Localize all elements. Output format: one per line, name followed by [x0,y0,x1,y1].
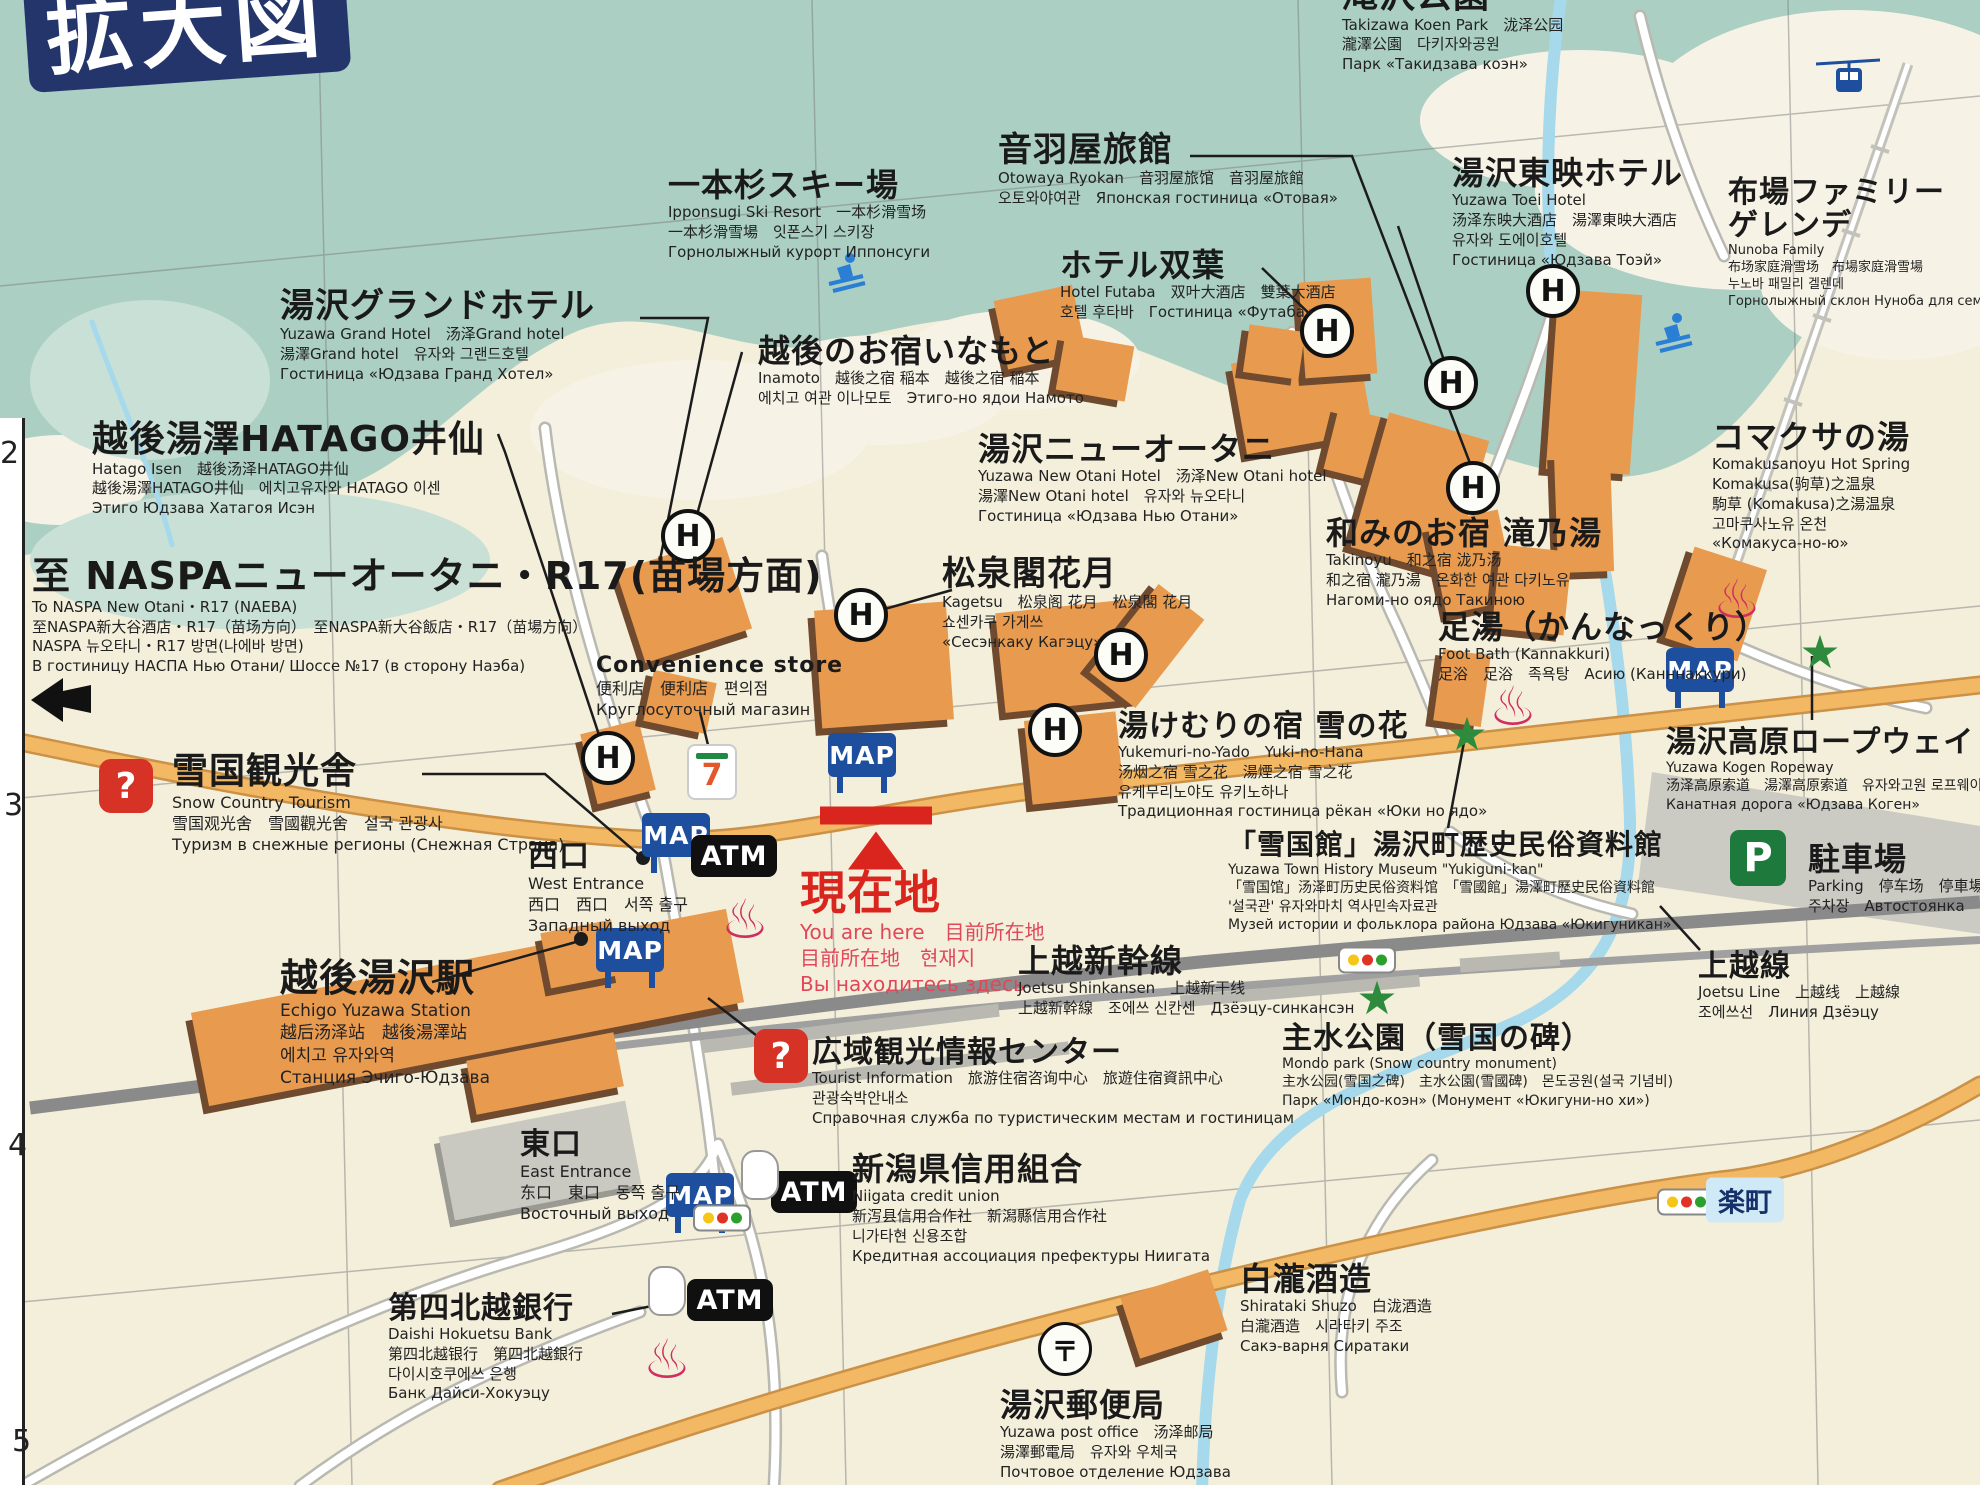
label-heading: 白瀧酒造 [1240,1262,1432,1297]
label-subline: «Сесэнкаку Кагэцу» [942,633,1192,653]
label-subline: 湯澤郵電局 유자와 우체국 [1000,1443,1231,1463]
label-subline: 汤泽东映大酒店 湯澤東映大酒店 [1452,211,1683,231]
label-subline: Yuzawa Kogen Ropeway [1666,759,1980,777]
enlarged-map-badge: 拡大図 [23,0,352,93]
label-subline: Yuzawa Grand Hotel 汤泽Grand hotel [280,325,595,345]
label-subline: Гостиница «Юдзава Гранд Хотел» [280,365,595,385]
label-subline: Takinoyu 和之宿 泷乃汤 [1326,551,1602,571]
label-subline: Yuzawa Town History Museum "Yukiguni-kan… [1228,861,1671,879]
label-subline: 主水公园(雪国之碑) 主水公園(雪國碑) 몬도공원(설국 기념비) [1282,1073,1673,1091]
grid-number: 3 [4,788,23,823]
atm-icon: ATM [687,1279,773,1321]
hotel-icon: H [1424,356,1478,410]
map-margin [0,418,25,1485]
label-subline: West Entrance [528,873,688,894]
label-subline: Hotel Futaba 双叶大酒店 雙葉大酒店 [1060,283,1336,303]
label-heading: 上越線 [1698,950,1900,983]
label-subline: Mondo park (Snow country monument) [1282,1055,1673,1073]
traffic-light-g [1376,955,1387,966]
attraction-star-icon: ★ [1799,629,1840,675]
map-board-icon: MAP [828,733,896,777]
label-subline: 布场家庭滑雪场 布場家庭滑雪場 [1728,259,1980,276]
label-heading: 至 NASPAニューオータニ・R17(苗場方面) [32,556,822,598]
label-subline: Joetsu Line 上越线 上越線 [1698,983,1900,1003]
label-subline: Вы находитесь здесь [800,971,1045,997]
building [1546,289,1642,474]
label-subline: 에치고 여관 이나모토 Этиго-но ядои Намото [758,389,1084,409]
label-subline: 「雪国馆」汤泽町历史民俗资料馆 「雪國館」湯澤町歷史民俗資料館 [1228,879,1671,897]
label-subline: 上越新幹線 조에쓰 신칸센 Дзёэцу-синкансэн [1018,999,1354,1019]
label-subline: Yuzawa Toei Hotel [1452,191,1683,211]
label-convenience-store: Convenience store便利店 便利店 편의점Круглосуточн… [596,654,843,720]
label-subline: You are here 目前所在地 [800,919,1045,945]
label-heading: 東口 [520,1128,680,1161]
you-are-here-bar [820,807,932,825]
label-subline: Станция Эчиго-Юдзава [280,1067,490,1089]
label-heading: 「雪国館」湯沢町歴史民俗資料館 [1228,830,1671,861]
label-subline: 다이시호쿠에쓰 은행 [388,1365,583,1385]
label-subline: 雪国观光舍 雪國觀光舍 설국 관광사 [172,813,564,834]
label-subline: '설국관' 유자와마치 역사민속자료관 [1228,898,1671,916]
label-subline: 一本杉滑雪場 잇폰스기 스키장 [668,223,930,243]
label-subline: Парк «Мондо-коэн» (Монумент «Юкигуни-но … [1282,1092,1673,1110]
label-yuzawa-grand-hotel: 湯沢グランドホテルYuzawa Grand Hotel 汤泽Grand hote… [280,288,595,385]
label-heading: 湯沢グランドホテル [280,288,595,325]
label-subline: Банк Дайси-Хокуэцу [388,1384,583,1404]
label-subline: «Комакуса-но-ю» [1712,534,1910,554]
hotel-icon: H [834,588,888,642]
traffic-light-y [703,1213,714,1224]
label-subline: 西口 西口 서쪽 출구 [528,894,688,915]
parking-icon: P [1730,830,1786,886]
label-subline: Foot Bath (Kannakkuri) [1438,645,1768,665]
label-subline: Snow Country Tourism [172,792,564,813]
label-subline: Ipponsugi Ski Resort 一本杉滑雪场 [668,203,930,223]
label-subline: 越后汤泽站 越後湯澤站 [280,1022,490,1044]
label-subline: Hatago Isen 越後汤泽HATAGO井仙 [92,460,485,480]
cable-car-icon [1816,58,1880,102]
label-inamoto: 越後のお宿いなもとInamoto 越後之宿 稲本 越後之宿 稲本에치고 여관 이… [758,334,1084,409]
hot-spring-icon: ♨ [1489,680,1537,734]
label-snow-country-tourism: 雪国観光舎Snow Country Tourism雪国观光舍 雪國觀光舍 설국 … [172,752,564,855]
label-subline: Гостиница «Юдзава Тоэй» [1452,251,1683,271]
label-tourist-information: 広域観光情報センターTourist Information 旅游住宿咨询中心 旅… [812,1036,1294,1128]
building [1120,1269,1227,1358]
label-heading: ゲレンデ [1728,209,1980,242]
label-subline: Восточный выход [520,1203,680,1224]
label-you-are-here: 現在地You are here 目前所在地目前所在地 현재지Вы находит… [800,868,1045,998]
label-subline: 至NASPA新大谷酒店・R17（苗场方向） 至NASPA新大谷飯店・R17（苗場… [32,618,822,638]
label-subline: 瀧澤公園 다키자와공원 [1342,35,1563,55]
label-yuzawa-post-office: 湯沢郵便局Yuzawa post office 汤泽邮局湯澤郵電局 유자와 우체… [1000,1388,1231,1483]
label-subline: Западный выход [528,915,688,936]
grid-number: 2 [0,436,19,471]
label-subline: Гостиница «Юдзава Нью Отани» [978,507,1327,527]
label-hotel-futaba: ホテル双葉Hotel Futaba 双叶大酒店 雙葉大酒店호텔 후타바 Гост… [1060,248,1336,323]
label-subline: Музей истории и фольклора района Юдзава … [1228,916,1671,934]
label-heading: 一本杉スキー場 [668,168,930,203]
label-niigata-credit-union: 新潟県信用組合Niigata credit union新泻县信用合作社 新潟縣信… [852,1152,1210,1266]
label-subline: To NASPA New Otani・R17 (NAEBA) [32,598,822,618]
label-shirataki-shuzo: 白瀧酒造Shirataki Shuzo 白泷酒造白瀧酒造 시라타키 주조Сакэ… [1240,1262,1432,1357]
you-are-here-triangle [848,832,904,870]
label-subline: Канатная дорога «Юдзава Коген» [1666,796,1980,814]
label-subline: 유케무리노야도 유키노하나 [1118,783,1487,803]
atm-icon: ATM [691,835,777,877]
label-heading: 音羽屋旅館 [998,132,1338,169]
label-subline: Парк «Такидзава коэн» [1342,55,1563,75]
bank-symbol-icon [741,1150,779,1200]
traffic-light-r [1362,955,1373,966]
label-subline: Echigo Yuzawa Station [280,1000,490,1022]
label-subline: 湯澤Grand hotel 유자와 그랜드호텔 [280,345,595,365]
label-heading: 足湯（かんなっくり） [1438,610,1768,645]
label-heading: ホテル双葉 [1060,248,1336,283]
label-heading: 湯沢高原ロープウェイ [1666,726,1980,759]
seven-eleven-icon: 7 [687,744,737,800]
atm-icon: ATM [771,1171,857,1213]
traffic-light-r [717,1213,728,1224]
label-subline: 第四北越银行 第四北越銀行 [388,1345,583,1365]
label-subline: Туризм в снежные регионы (Снежная Страна… [172,834,564,855]
traffic-light-icon [693,1205,751,1232]
rakumachi-area-tag: 楽町 [1706,1178,1784,1223]
label-heading: 雪国観光舎 [172,752,564,792]
hotel-icon: H [1446,461,1500,515]
label-subline: Niigata credit union [852,1187,1210,1207]
label-subline: Komakusanoyu Hot Spring [1712,455,1910,475]
label-heading: 広域観光情報センター [812,1036,1294,1069]
label-subline: East Entrance [520,1161,680,1182]
label-subline: Joetsu Shinkansen 上越新干线 [1018,979,1354,999]
label-subline: Daishi Hokuetsu Bank [388,1325,583,1345]
grid-number: 5 [12,1424,31,1459]
label-heading: 現在地 [800,868,1045,919]
label-heading: 布場ファミリー [1728,176,1980,209]
label-subline: 汤烟之宿 雪之花 湯煙之宿 雪之花 [1118,763,1487,783]
label-subline: Komakusa(驹草)之温泉 [1712,475,1910,495]
label-joetsu-shinkansen: 上越新幹線Joetsu Shinkansen 上越新干线上越新幹線 조에쓰 신칸… [1018,944,1354,1019]
label-subline: 오토와야여관 Японская гостиница «Отовая» [998,189,1338,209]
label-subline: 东口 東口 동쪽 출구 [520,1182,680,1203]
label-subline: 駒草 (Komakusa)之湯温泉 [1712,495,1910,515]
label-kagetsu: 松泉閣花月Kagetsu 松泉阁 花月 松泉閣 花月쇼센카쿠 가게쓰«Сесэн… [942,556,1192,653]
information-icon: ? [99,759,153,813]
traffic-light-y [1667,1197,1678,1208]
label-subline: Inamoto 越後之宿 稲本 越後之宿 稲本 [758,369,1084,389]
label-subline: 고마쿠사노유 온천 [1712,515,1910,535]
label-subline: 便利店 便利店 편의점 [596,678,843,699]
label-subline: 에치고 유자와역 [280,1045,490,1067]
station-platform [1460,952,1561,973]
label-subline: 和之宿 瀧乃湯 온화한 여관 다키노유 [1326,571,1602,591]
label-heading: 和みのお宿 滝乃湯 [1326,516,1602,551]
label-mondo-park: 主水公園（雪国の碑）Mondo park (Snow country monum… [1282,1022,1673,1110]
label-yukemuri-no-yado-yuki-no-hana: 湯けむりの宿 雪の花Yukemuri-no-Yado Yuki-no-Hana汤… [1118,710,1487,822]
label-subline: 관광숙박안내소 [812,1089,1294,1109]
label-echigo-yuzawa-station: 越後湯沢駅Echigo Yuzawa Station越后汤泽站 越後湯澤站에치고… [280,958,490,1090]
label-subline: 新泻县信用合作社 新潟縣信用合作社 [852,1207,1210,1227]
label-daishi-hokuetsu-bank: 第四北越銀行Daishi Hokuetsu Bank第四北越银行 第四北越銀行다… [388,1292,583,1404]
label-hatago-isen: 越後湯澤HATAGO井仙Hatago Isen 越後汤泽HATAGO井仙越後湯澤… [92,420,485,519]
label-heading: 上越新幹線 [1018,944,1354,979]
label-subline: 주차장 Автостоянка [1808,897,1980,917]
direction-arrow-icon [31,676,93,724]
label-heading: 越後湯澤HATAGO井仙 [92,420,485,460]
label-subline: 足浴 足浴 족욕탕 Асию (Канннаккури) [1438,665,1768,685]
label-subline: Yukemuri-no-Yado Yuki-no-Hana [1118,743,1487,763]
label-komakusanoyu-hot-spring: コマクサの湯Komakusanoyu Hot SpringKomakusa(驹草… [1712,420,1910,554]
label-subline: 니가타현 신용조합 [852,1227,1210,1247]
hotel-icon: H [581,731,635,785]
building [1243,324,1305,379]
you-are-here-marker [820,807,932,870]
label-subline: Горнолыжный склон Нуноба для семейного к… [1728,293,1980,310]
label-heading: Convenience store [596,654,843,678]
label-heading: 越後湯沢駅 [280,958,490,1000]
label-ipponsugi-ski-resort: 一本杉スキー場Ipponsugi Ski Resort 一本杉滑雪场一本杉滑雪場… [668,168,930,263]
hotel-icon: H [1526,264,1580,318]
label-east-entrance: 東口East Entrance东口 東口 동쪽 출구Восточный выхо… [520,1128,680,1224]
skier-icon [1650,310,1694,354]
label-joetsu-line: 上越線Joetsu Line 上越线 上越線조에쓰선 Линия Дзёэцу [1698,950,1900,1023]
label-subline: Почтовое отделение Юдзава [1000,1463,1231,1483]
label-subline: Nunoba Family [1728,242,1980,259]
label-subline: Takizawa Koen Park 泷泽公园 [1342,16,1563,36]
label-subline: 白瀧酒造 시라타키 주조 [1240,1317,1432,1337]
label-foot-bath-kannakkuri: 足湯（かんなっくり）Foot Bath (Kannakkuri)足浴 足浴 족욕… [1438,610,1768,685]
label-subline: Справочная служба по туристическим места… [812,1109,1294,1129]
post-office-icon: 〒 [1038,1322,1092,1376]
label-subline: Yuzawa post office 汤泽邮局 [1000,1423,1231,1443]
label-heading: 湯沢東映ホテル [1452,156,1683,191]
traffic-light-r [1681,1197,1692,1208]
hotel-icon: H [1028,703,1082,757]
label-heading: 主水公園（雪国の碑） [1282,1022,1673,1055]
label-heading: 第四北越銀行 [388,1292,583,1325]
label-west-entrance: 西口West Entrance西口 西口 서쪽 출구Западный выход [528,840,688,936]
label-subline: 汤泽高原索道 湯澤高原索道 유자와고원 로프웨이 [1666,777,1980,795]
label-subline: Горнолыжный курорт Иппонсуги [668,243,930,263]
label-yuzawa-new-otani: 湯沢ニューオータニYuzawa New Otani Hotel 汤泽New Ot… [978,432,1327,527]
attraction-star-icon: ★ [1356,975,1397,1021]
enlarged-map-title: 拡大図 [43,0,331,89]
label-parking: 駐車場Parking 停车场 停車場주차장 Автостоянка [1808,842,1980,917]
hot-spring-icon: ♨ [643,1333,691,1387]
label-subline: Shirataki Shuzo 白泷酒造 [1240,1297,1432,1317]
label-heading: 湯沢ニューオータニ [978,432,1327,467]
label-subline: Традиционная гостиница рёкан «Юки но ядо… [1118,802,1487,822]
label-subline: 호텔 후타바 Гостиница «Футаба» [1060,303,1336,323]
label-subline: Yuzawa New Otani Hotel 汤泽New Otani hotel [978,467,1327,487]
label-subline: 쇼센카쿠 가게쓰 [942,613,1192,633]
label-subline: 越後湯澤HATAGO井仙 에치고유자와 HATAGO 이센 [92,479,485,499]
label-heading: 西口 [528,840,688,873]
label-subline: 누노바 패밀리 겔렌데 [1728,276,1980,293]
label-heading: 湯けむりの宿 雪の花 [1118,710,1487,743]
label-yuzawa-kogen-ropeway: 湯沢高原ロープウェイYuzawa Kogen Ropeway汤泽高原索道 湯澤高… [1666,726,1980,814]
label-subline: Этиго Юдзава Хатагоя Исэн [92,499,485,519]
information-icon: ? [754,1029,808,1083]
label-subline: 유자와 도에이호텔 [1452,231,1683,251]
label-subline: Сакэ-варня Сиратаки [1240,1337,1432,1357]
label-nunoba-family-gelande: 布場ファミリーゲレンデNunoba Family布场家庭滑雪场 布場家庭滑雪場누… [1728,176,1980,311]
bank-symbol-icon [648,1266,686,1316]
grid-number: 4 [8,1128,27,1163]
label-subline: Tourist Information 旅游住宿咨询中心 旅遊住宿資訊中心 [812,1069,1294,1089]
label-otowaya-ryokan: 音羽屋旅館Otowaya Ryokan 音羽屋旅馆 音羽屋旅館오토와야여관 Яп… [998,132,1338,209]
label-heading: 滝沢公園 [1342,0,1563,16]
label-subline: 조에쓰선 Линия Дзёэцу [1698,1003,1900,1023]
label-subline: Parking 停车场 停車場 [1808,877,1980,897]
label-takizawa-koen-park: 滝沢公園Takizawa Koen Park 泷泽公园瀧澤公園 다키자와공원Па… [1342,0,1563,75]
label-subline: Круглосуточный магазин [596,699,843,720]
label-heading: 越後のお宿いなもと [758,334,1084,369]
label-yukiguni-kan-museum: 「雪国館」湯沢町歴史民俗資料館Yuzawa Town History Museu… [1228,830,1671,935]
label-subline: Кредитная ассоциация префектуры Ниигата [852,1247,1210,1267]
label-subline: Kagetsu 松泉阁 花月 松泉閣 花月 [942,593,1192,613]
seven-eleven-digit: 7 [702,761,723,791]
tourist-map-canvas: 拡大図 2345 HHHHHHHHHMAPMAPMAPMAPMAPATMATMA… [0,0,1980,1485]
label-heading: 新潟県信用組合 [852,1152,1210,1187]
label-subline: Otowaya Ryokan 音羽屋旅馆 音羽屋旅館 [998,169,1338,189]
label-heading: コマクサの湯 [1712,420,1910,455]
label-heading: 駐車場 [1808,842,1980,877]
label-heading: 湯沢郵便局 [1000,1388,1231,1423]
traffic-light-g [1695,1197,1706,1208]
label-yuzawa-toei-hotel: 湯沢東映ホテルYuzawa Toei Hotel汤泽东映大酒店 湯澤東映大酒店유… [1452,156,1683,270]
hot-spring-icon: ♨ [721,893,769,947]
traffic-light-g [731,1213,742,1224]
label-takinoyu: 和みのお宿 滝乃湯Takinoyu 和之宿 泷乃汤和之宿 瀧乃湯 온화한 여관 … [1326,516,1602,611]
label-subline: 湯澤New Otani hotel 유자와 뉴오타니 [978,487,1327,507]
label-subline: 目前所在地 현재지 [800,945,1045,971]
label-heading: 松泉閣花月 [942,556,1192,593]
